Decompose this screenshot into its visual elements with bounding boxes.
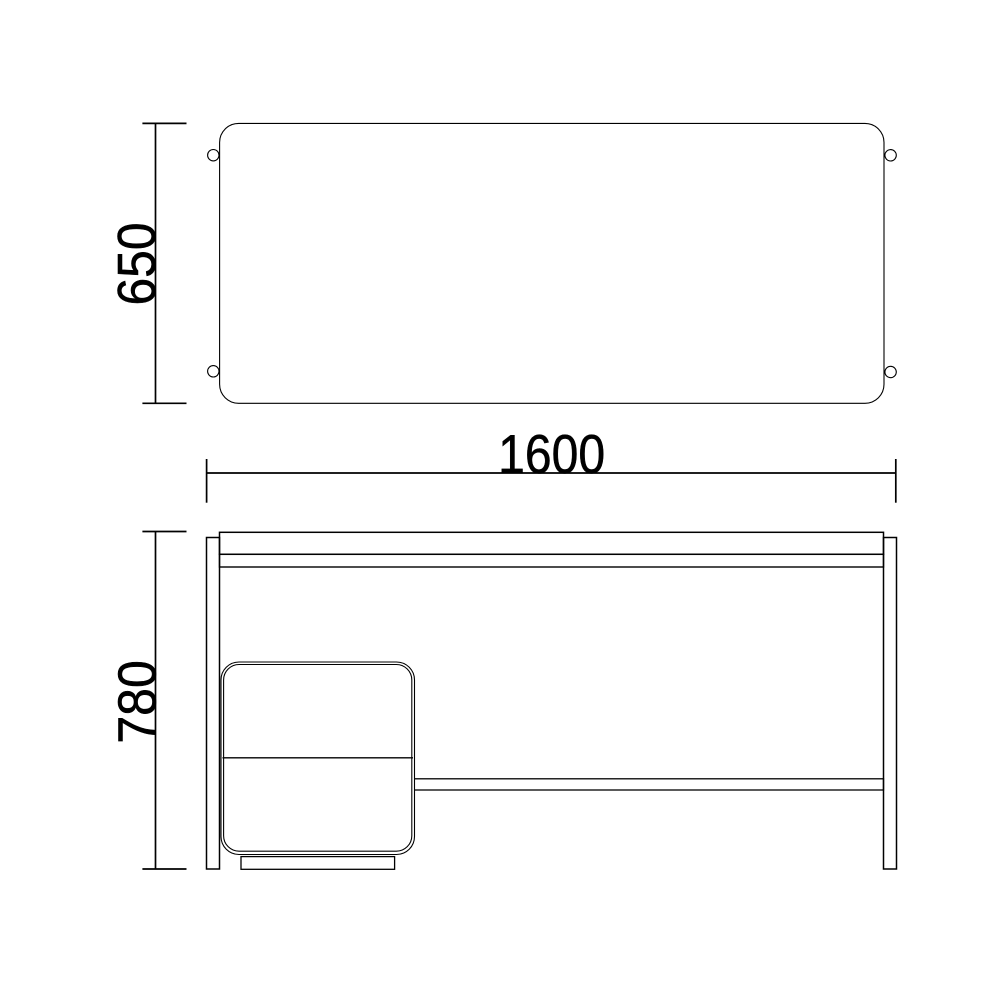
svg-text:1600: 1600 xyxy=(498,423,605,485)
svg-text:780: 780 xyxy=(108,660,168,744)
svg-text:650: 650 xyxy=(107,223,167,306)
